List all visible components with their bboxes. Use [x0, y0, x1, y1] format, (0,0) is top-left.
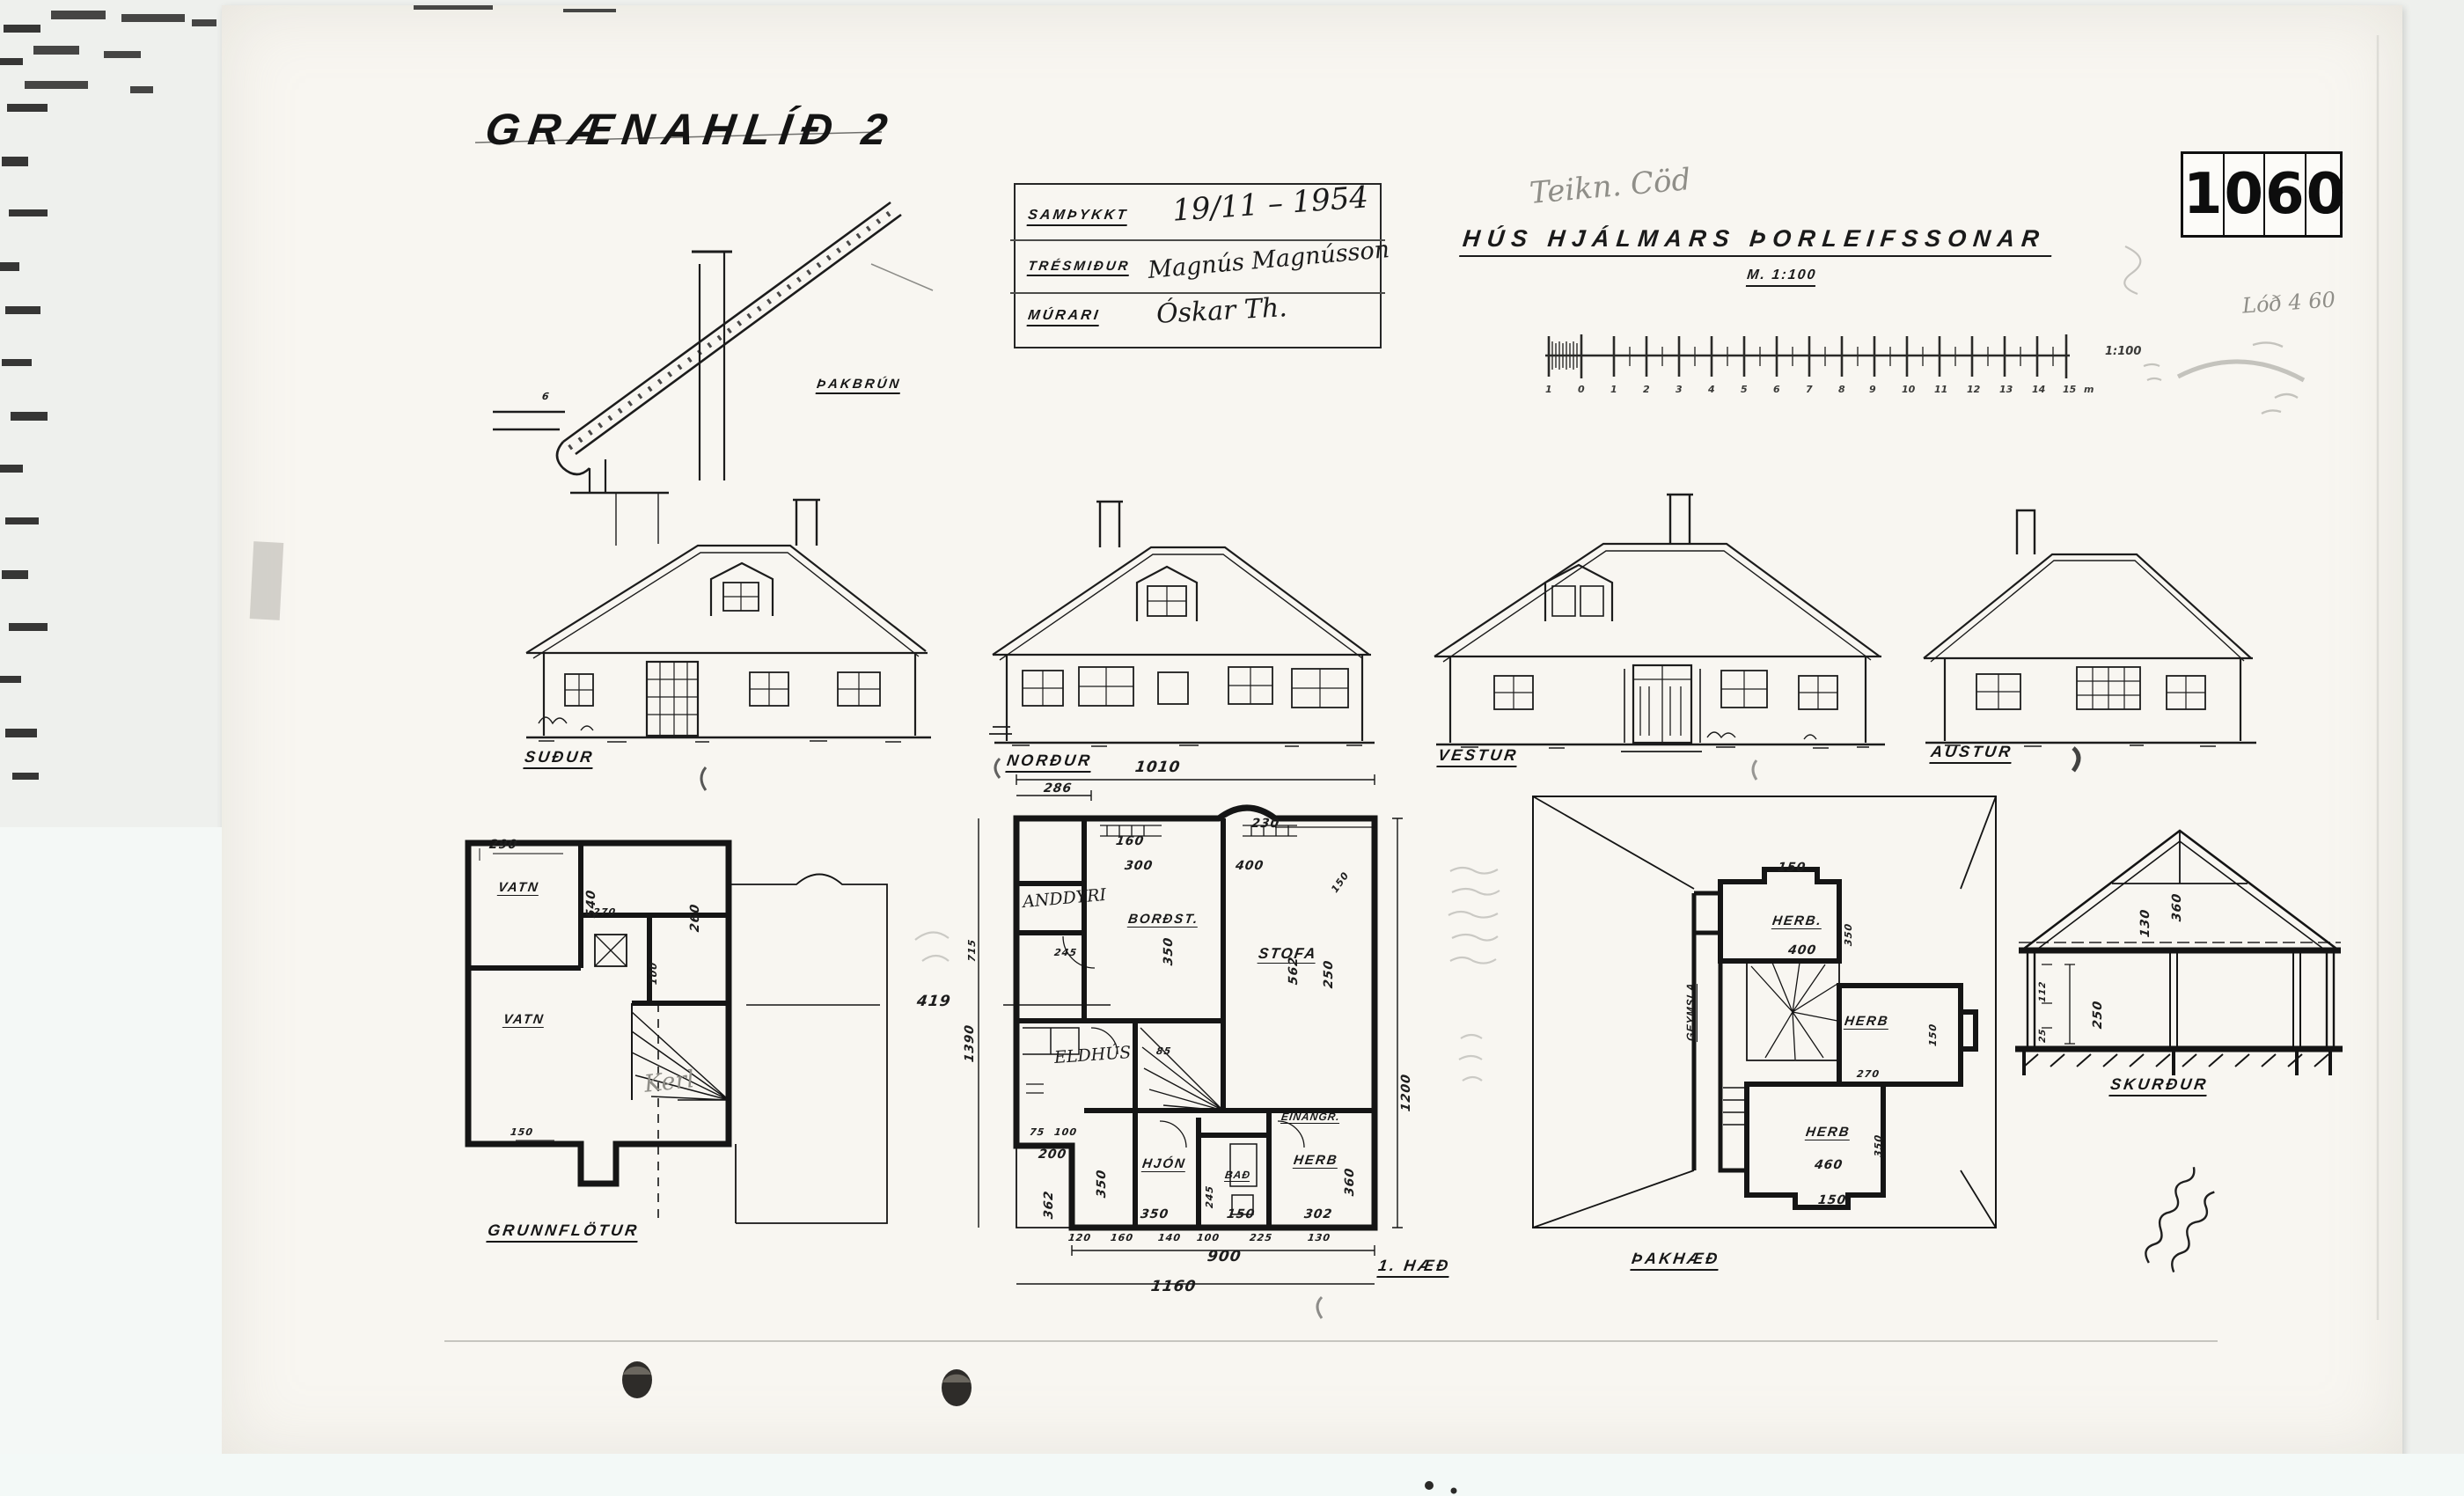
scalebar-tick: 4: [1708, 384, 1715, 395]
stamp-divider: [1010, 292, 1385, 294]
elevation-label-west: VESTUR: [1436, 746, 1519, 767]
number-digit: 0: [2306, 154, 2346, 235]
dim-label: 245: [1204, 1184, 1215, 1209]
dim-label: 1160: [1150, 1278, 1198, 1295]
scalebar-tick: 13: [1999, 384, 2013, 395]
scan-noise-top: [25, 5, 616, 93]
scalebar-ratio: 1:100: [2105, 345, 2141, 358]
room-label: HERB: [1844, 1014, 1890, 1030]
stamp-carpenter-signature: Magnús Magnússon: [1147, 236, 1390, 284]
scalebar-tick: 14: [2032, 384, 2045, 395]
plan-label-attic: ÞAKHÆÐ: [1630, 1250, 1720, 1271]
dim-label: 150: [1817, 1193, 1847, 1207]
dim-label: 260: [688, 903, 702, 933]
dim-label: 120: [1067, 1232, 1092, 1243]
elevation-label-east: AUSTUR: [1929, 743, 2013, 764]
scalebar-tick: 1: [1545, 384, 1552, 395]
plan-label-first: 1. HÆÐ: [1376, 1257, 1451, 1278]
room-label: BAÐ: [1224, 1169, 1251, 1182]
scalebar-tick: 10: [1902, 384, 1915, 395]
dim-label: 350: [1162, 936, 1176, 966]
dim-label: 100: [648, 961, 659, 986]
dim-label: 225: [1249, 1232, 1273, 1243]
room-label: GEYMSLA: [1684, 982, 1698, 1042]
dim-label: 250: [1322, 959, 1336, 989]
dim-label: 270: [592, 906, 617, 918]
dim-label: 302: [1303, 1207, 1333, 1221]
dim-label: 75: [1029, 1126, 1045, 1138]
project-title: HÚS HJÁLMARS ÞORLEIFSSONAR: [1459, 225, 2054, 257]
scalebar-tick: 11: [1934, 384, 1947, 395]
dim-label: 300: [1124, 859, 1154, 873]
dim-label: 360: [1343, 1167, 1357, 1197]
dim-label: 290: [488, 838, 518, 852]
plan-label-basement: GRUNNFLÖTUR: [486, 1221, 640, 1243]
tape-smudge: [250, 541, 284, 620]
dim-label: 200: [1038, 1148, 1067, 1162]
elevation-east: [1924, 510, 2256, 746]
architect-signature: [2139, 1164, 2224, 1276]
dim-label: 150: [1927, 1023, 1939, 1047]
dim-label: 160: [1115, 834, 1145, 848]
drawing-number-stamp: 1 0 6 0: [2181, 151, 2343, 238]
dim-label: 150: [1777, 861, 1807, 875]
detail-dim: 6: [541, 391, 550, 402]
scalebar-tick: 1: [1610, 384, 1617, 395]
approval-stamp-box: SAMÞYKKT 19/11 – 1954 TRÉSMIÐUR Magnús M…: [1014, 183, 1382, 348]
dim-label: 100: [1053, 1126, 1078, 1138]
dim-label: 1200: [1399, 1073, 1413, 1112]
dim-label: 130: [1307, 1232, 1331, 1243]
stamp-mason-signature: Óskar Th.: [1155, 292, 1287, 330]
dim-label: 362: [1042, 1190, 1056, 1220]
dim-label: 1390: [963, 1023, 977, 1063]
scalebar-tick: 7: [1806, 384, 1813, 395]
dim-label: 150: [1226, 1207, 1256, 1221]
dim-label: 350: [1095, 1169, 1109, 1199]
scalebar-tick: 6: [1773, 384, 1780, 395]
scalebar-tick: 2: [1643, 384, 1650, 395]
room-label-pencil: Kerl: [643, 1066, 696, 1098]
scanned-drawing-sheet: GRÆNAHLÍÐ 2 ÞAKBRÚN 6 SAMÞYKKT 19/11 – 1…: [0, 0, 2464, 1496]
eaves-detail-drawing: [493, 202, 901, 546]
stray-pencil-line: [871, 264, 933, 290]
dim-label: 85: [1155, 1045, 1172, 1057]
scalebar-tick: 5: [1741, 384, 1748, 395]
room-label: HERB: [1805, 1125, 1852, 1140]
stamp-approved-label: SAMÞYKKT: [1027, 208, 1130, 226]
stamp-mason-label: MÚRARI: [1027, 308, 1102, 326]
plan-attic: [1533, 796, 1996, 1228]
sheet-title: GRÆNAHLÍÐ 2: [482, 104, 899, 155]
scalebar-tick: 9: [1869, 384, 1876, 395]
room-label: HERB: [1293, 1153, 1339, 1169]
number-digit: 0: [2225, 154, 2266, 235]
scalebar-tick: 0: [1578, 384, 1585, 395]
dim-label: 350: [1140, 1207, 1170, 1221]
dim-label: 112: [2038, 980, 2048, 1002]
dim-label: 350: [1873, 1133, 1884, 1158]
dim-label: 130: [2138, 908, 2152, 938]
dim-label: 286: [1043, 781, 1073, 796]
dim-label: 160: [1110, 1232, 1134, 1243]
elevation-label-north: NORÐUR: [1005, 752, 1093, 773]
scale-note: M. 1:100: [1746, 268, 1817, 287]
number-digit: 6: [2265, 154, 2306, 235]
dim-label: 350: [1843, 922, 1854, 947]
dim-label: 460: [1814, 1158, 1844, 1172]
room-label: BORÐST.: [1127, 912, 1200, 928]
room-label: EINANGR.: [1280, 1111, 1341, 1124]
dim-label: 419: [916, 993, 952, 1010]
dim-label: 150: [510, 1126, 534, 1138]
scale-bar: [1545, 334, 2070, 378]
dim-label: 360: [2170, 892, 2184, 922]
room-label: VATN: [502, 1012, 546, 1028]
dim-label: 230: [1250, 817, 1280, 831]
dim-label: 140: [1157, 1232, 1182, 1243]
elevation-west: [1434, 495, 1885, 752]
scan-noise-left: [0, 25, 48, 780]
dim-label: 400: [1787, 943, 1817, 957]
plan-label-section: SKURÐUR: [2108, 1075, 2209, 1096]
dim-label: 245: [1053, 947, 1078, 958]
detail-label-thakbrun: ÞAKBRÚN: [816, 377, 903, 394]
elevation-north: [989, 502, 1375, 746]
elevation-south: [526, 500, 931, 742]
room-label: VATN: [497, 880, 540, 896]
dim-label: 270: [1856, 1068, 1881, 1080]
dim-label: 25: [2038, 1028, 2048, 1043]
scalebar-tick: 15: [2063, 384, 2076, 395]
dim-label: 100: [1196, 1232, 1221, 1243]
scalebar-tick: 8: [1838, 384, 1845, 395]
dim-label: 562: [1287, 956, 1301, 986]
scalebar-tick: 3: [1676, 384, 1683, 395]
scalebar-tick: 12: [1967, 384, 1980, 395]
scalebar-tick: m: [2084, 384, 2094, 395]
crescent-marks: [701, 748, 2079, 1318]
dim-label: 250: [2091, 1000, 2105, 1030]
stamp-approved-date: 19/11 – 1954: [1171, 180, 1369, 228]
stamp-carpenter-label: TRÉSMIÐUR: [1027, 259, 1132, 276]
room-label: HERB.: [1771, 913, 1823, 929]
elevation-label-south: SUÐUR: [523, 748, 595, 769]
dim-label: 1010: [1134, 759, 1182, 776]
room-label: HJÓN: [1141, 1156, 1187, 1172]
section-drawing: [2015, 831, 2343, 1075]
number-digit: 1: [2183, 154, 2225, 235]
dim-label: 400: [1235, 859, 1265, 873]
pencil-scribbles-center: [915, 868, 1500, 1081]
dim-label: 900: [1206, 1248, 1243, 1265]
pencil-smudges: [2124, 246, 2304, 414]
dim-label: 715: [966, 938, 978, 963]
